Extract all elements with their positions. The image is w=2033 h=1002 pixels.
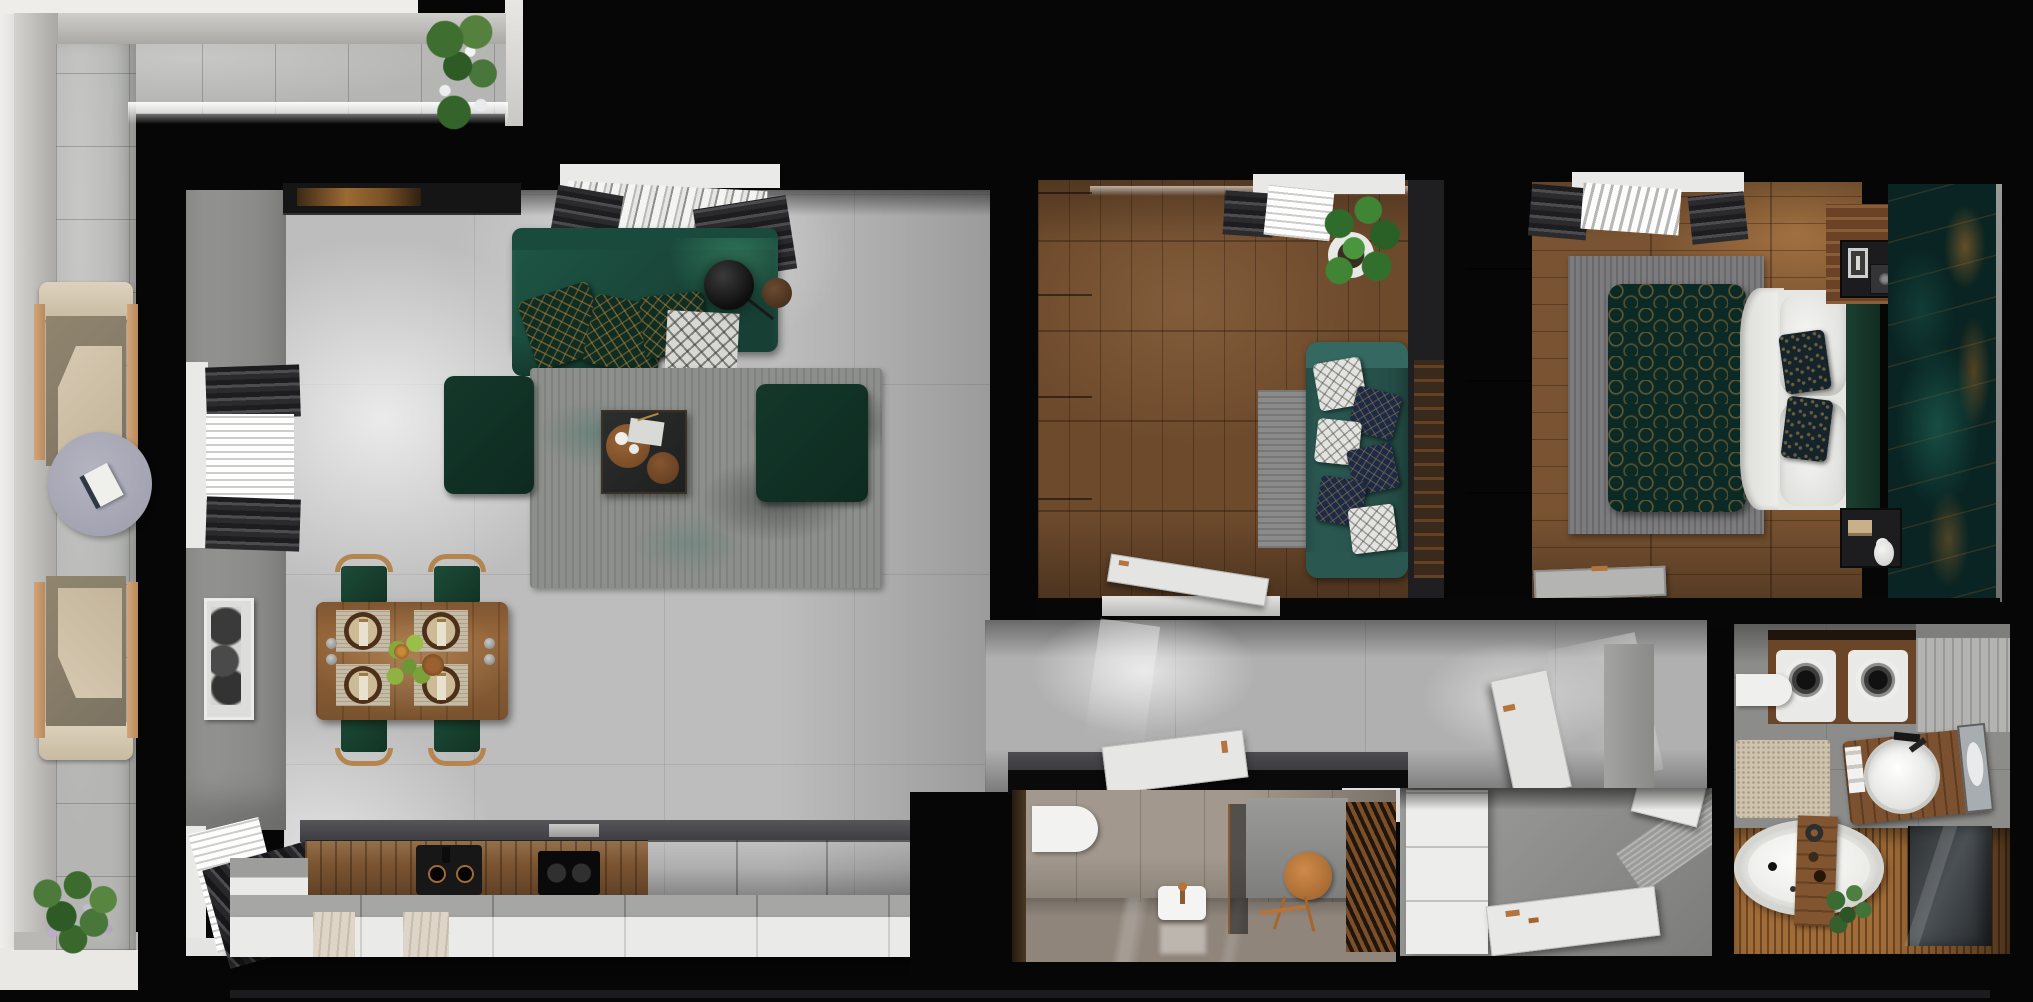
book — [79, 463, 123, 509]
door-handle — [1528, 917, 1539, 923]
photo-frame — [1848, 248, 1868, 278]
hallway-wall — [1604, 644, 1654, 792]
round-side-table — [762, 278, 792, 308]
napkin — [359, 673, 368, 700]
balcony-outer-wall-top — [0, 0, 418, 14]
cup — [484, 654, 495, 665]
white-wardrobe — [1406, 790, 1488, 954]
vase — [1874, 540, 1894, 566]
floor-reflection — [1160, 924, 1206, 954]
kitchen-sink — [416, 845, 482, 895]
guest-toilet-room — [1012, 790, 1396, 962]
napkin — [437, 619, 446, 646]
dryer-door — [1856, 658, 1900, 702]
chair-armrest — [127, 304, 138, 460]
dining-chair — [333, 554, 395, 604]
round-side-table — [48, 432, 152, 536]
vanity — [1842, 723, 1997, 830]
island-marble-pillar — [313, 912, 355, 957]
den-rug — [1258, 390, 1308, 548]
dark-curtain — [205, 364, 301, 419]
bath-mat — [1736, 740, 1830, 818]
dark-curtain — [1688, 191, 1749, 245]
bed-headboard — [1846, 292, 1880, 512]
book-stack — [1848, 520, 1872, 533]
bed-duvet — [1608, 284, 1746, 512]
round-copper-mirror — [1284, 852, 1332, 900]
faucet-stem — [1180, 890, 1185, 904]
wood-bowl — [422, 654, 444, 676]
throw-blanket — [664, 310, 739, 376]
wall-edge-highlight — [1996, 184, 2002, 602]
door-handle — [1505, 909, 1520, 917]
bottle — [1808, 852, 1818, 862]
potted-plant — [1308, 190, 1412, 302]
toilet — [1032, 806, 1098, 852]
dining-table — [316, 602, 508, 720]
wall-art — [204, 598, 254, 720]
tub-drain — [1768, 862, 1777, 871]
island-marble-pillar — [403, 912, 449, 957]
sheer-curtain — [206, 414, 294, 502]
shower-glass-screen — [1908, 826, 1992, 946]
chair-seat — [341, 566, 387, 604]
chair-back-cushion — [39, 722, 133, 760]
chair-armrest — [34, 304, 45, 460]
cup — [326, 638, 337, 649]
cup — [484, 638, 495, 649]
balcony-outer-wall-left — [0, 0, 14, 990]
lounge-chair — [34, 560, 138, 760]
chair-wood-back — [335, 748, 393, 766]
apartment-floor-plan-render — [0, 0, 2033, 1002]
wall — [910, 792, 1014, 1002]
wood-plate — [647, 452, 679, 484]
coffee-table — [601, 410, 687, 494]
bottle — [1814, 870, 1826, 882]
bottom-wall-edge — [230, 990, 1990, 998]
toilet — [1736, 674, 1792, 706]
den-wardrobe — [1038, 184, 1092, 600]
flowering-plant — [418, 10, 508, 132]
green-ottoman — [756, 384, 868, 502]
storage-cabinet — [1916, 624, 2010, 732]
chair-armrest — [127, 582, 138, 738]
sofa-armrest — [1306, 552, 1408, 578]
potted-plant — [1816, 880, 1882, 940]
wood-slat-wall — [1346, 802, 1396, 952]
door-panel — [1486, 886, 1661, 956]
bedroom-wardrobe — [1466, 184, 1532, 604]
floor-lamp-shade — [704, 260, 754, 310]
tv-media-panel-wood — [297, 188, 421, 206]
pillow — [1347, 503, 1398, 554]
chair-armrest — [34, 582, 45, 738]
dining-chair — [426, 554, 488, 604]
cup — [629, 444, 639, 454]
chair-seat — [434, 566, 480, 604]
induction-hob — [538, 851, 600, 895]
bathroom — [1734, 624, 2010, 954]
sheer-curtain — [1581, 183, 1682, 236]
napkin — [437, 673, 446, 700]
wall-shadow — [1400, 788, 1712, 810]
serving-tray — [1534, 566, 1667, 601]
bottle — [394, 644, 409, 659]
wood-art-panel — [1414, 360, 1444, 578]
flower-planter — [22, 856, 138, 960]
notebook — [627, 418, 664, 446]
wall-art-print — [211, 607, 241, 705]
window-sill — [186, 362, 208, 548]
dining-chair — [426, 714, 488, 764]
mirror-reflection — [1965, 741, 1986, 786]
chair-wood-back — [428, 748, 486, 766]
door-handle — [1503, 704, 1516, 712]
door-handle — [1221, 741, 1228, 754]
extractor-vent — [549, 824, 599, 837]
chair-back-cushion — [39, 282, 133, 320]
tray-handle — [1591, 566, 1607, 572]
door-handle — [1118, 560, 1129, 567]
laundry-unit — [1768, 630, 1918, 724]
cup — [326, 654, 337, 665]
glass-reflection — [1905, 826, 1958, 946]
dining-chair — [333, 714, 395, 764]
sink-drain — [428, 865, 446, 883]
accent-pillow — [1778, 329, 1832, 395]
teal-marble-feature-wall — [1888, 184, 1998, 602]
kitchen-gray-counter — [648, 840, 915, 897]
shower-head — [1805, 824, 1824, 843]
dark-curtain — [205, 496, 301, 551]
copper-faucet — [1178, 882, 1187, 891]
green-ottoman — [444, 376, 534, 494]
door-frame — [1012, 790, 1026, 962]
glass-partition — [1228, 804, 1248, 934]
kitchen-faucet — [442, 847, 450, 863]
cup — [615, 432, 628, 445]
tumble-dryer — [1848, 650, 1908, 722]
sink-drain — [456, 865, 474, 883]
kitchen-backsplash-ledge — [300, 820, 915, 842]
napkin — [359, 619, 368, 646]
entry-nook — [1400, 788, 1712, 956]
accent-pillow — [1780, 395, 1833, 462]
